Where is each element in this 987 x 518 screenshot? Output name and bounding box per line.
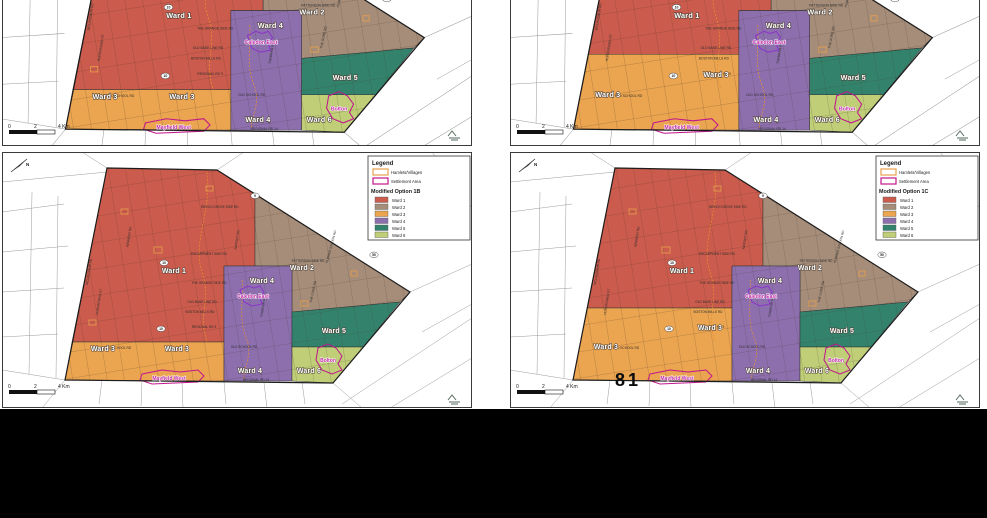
ward-4-swatch [375, 218, 388, 224]
svg-text:N: N [534, 162, 537, 167]
shield-numlabel-10: 10 [167, 5, 171, 9]
svg-text:Ward 4: Ward 4 [900, 219, 914, 224]
wlabel-ward-1: Ward 1 [162, 268, 186, 275]
svg-text:Ward 4: Ward 4 [392, 219, 406, 224]
ward-5-swatch [375, 225, 388, 231]
wlabel-ward-3: Ward 3 [169, 92, 194, 101]
wlabel-ward-4: Ward 4 [753, 115, 778, 124]
rlabel-escarpment-side-rd: ESCARPMENT SIDE RD [191, 252, 228, 256]
wlabel-ward-4: Ward 4 [766, 21, 791, 30]
rlabel-old-base-line-rd: OLD BASE LINE RD [695, 300, 725, 304]
shield-numlabel-50: 50 [880, 253, 884, 257]
slabel-caledon-east: Caledon East [753, 40, 786, 46]
wlabel-ward-3: Ward 3 [92, 92, 117, 101]
ward-1-swatch [375, 197, 388, 203]
legend-title: Legend [880, 161, 902, 167]
ward-1-swatch [883, 197, 896, 203]
ward-2-swatch [375, 204, 388, 210]
settlement-swatch [373, 178, 388, 184]
slabel-bolton: Bolton [331, 106, 347, 112]
hamlets-label: Hamlets/Villages [899, 170, 930, 175]
map-panel-bottom-left: BEECH GROVE SIDE RDESCARPMENT SIDE RDPAT… [2, 152, 472, 408]
wlabel-ward-1: Ward 1 [670, 268, 694, 275]
svg-text:4 Km: 4 Km [58, 384, 70, 390]
svg-text:Ward 3: Ward 3 [900, 212, 914, 217]
option-title: Modified Option 1C [879, 189, 929, 195]
ward-3-swatch [375, 211, 388, 217]
svg-text:4 Km: 4 Km [566, 384, 578, 390]
shield-numlabel-50: 50 [385, 0, 389, 1]
wlabel-ward-3: Ward 3 [698, 325, 722, 332]
slabel-caledon-east: Caledon East [245, 40, 278, 46]
rlabel-escarpment-side-rd: ESCARPMENT SIDE RD [699, 252, 736, 256]
wlabel-ward-4: Ward 4 [258, 21, 283, 30]
slabel-caledon-east: Caledon East [237, 294, 269, 300]
wlabel-ward-5: Ward 5 [841, 73, 866, 82]
rlabel-old-base-line-rd: OLD BASE LINE RD [187, 300, 217, 304]
black-band [0, 409, 987, 518]
rlabel-boston-mills-rd: BOSTON MILLS RD [694, 310, 724, 314]
shield-numlabel-10: 10 [163, 74, 167, 78]
wlabel-ward-4: Ward 4 [238, 368, 262, 375]
slabel-caledon-east: Caledon East [745, 294, 777, 300]
rlabel-regional-rd-9: REGIONAL RD 9 [192, 325, 217, 329]
wlabel-ward-5: Ward 5 [333, 73, 358, 82]
hamlets-swatch [881, 169, 896, 175]
wlabel-ward-1: Ward 1 [166, 11, 191, 20]
rlabel-regional-rd-9: REGIONAL RD 9 [197, 72, 223, 76]
wlabel-ward-3: Ward 3 [703, 70, 728, 79]
slabel-bolton: Bolton [320, 358, 336, 364]
legend: Legend Hamlets/Villages Settlement Area … [368, 156, 470, 240]
svg-text:2: 2 [34, 384, 37, 390]
rlabel-the-grange-side-rd: THE GRANGE SIDE RD [700, 281, 736, 285]
rlabel-the-grange-side-rd: THE GRANGE SIDE RD [705, 26, 742, 30]
rlabel-the-grange-side-rd: THE GRANGE SIDE RD [197, 26, 234, 30]
rlabel-patterson-side-rd: PATTERSON SIDE RD [800, 259, 834, 263]
slabel-mayfield-west: Mayfield West [664, 125, 699, 131]
slabel-mayfield-west: Mayfield West [660, 376, 694, 382]
wlabel-ward-2: Ward 2 [798, 265, 822, 272]
shield-numlabel-10: 10 [675, 5, 679, 9]
shield-numlabel-9: 9 [762, 194, 764, 198]
map-panel-top-left: BEECH GROVE SIDE RDESCARPMENT SIDE RDPAT… [0, 0, 489, 158]
svg-text:Ward 5: Ward 5 [900, 226, 914, 231]
option-title: Modified Option 1B [371, 189, 421, 195]
shield-numlabel-10: 10 [162, 261, 166, 265]
svg-text:Ward 1: Ward 1 [900, 198, 914, 203]
wlabel-ward-6: Ward 6 [805, 368, 829, 375]
rlabel-boston-mills-rd: BOSTON MILLS RD [191, 56, 222, 60]
document-page: BEECH GROVE SIDE RDESCARPMENT SIDE RDPAT… [0, 0, 987, 518]
wlabel-ward-3: Ward 3 [165, 346, 189, 353]
rlabel-regional-rd-14: REGIONAL RD 14 [243, 378, 270, 382]
legend: Legend Hamlets/Villages Settlement Area … [876, 156, 978, 240]
ward-4-swatch [883, 218, 896, 224]
svg-text:Ward 2: Ward 2 [900, 205, 914, 210]
wlabel-ward-3: Ward 3 [594, 344, 618, 351]
wlabel-ward-2: Ward 2 [299, 8, 324, 17]
ward-2-swatch [883, 204, 896, 210]
svg-text:2: 2 [542, 384, 545, 390]
ward-3-swatch [883, 211, 896, 217]
svg-text:Ward 6: Ward 6 [392, 233, 406, 238]
svg-text:Ward 6: Ward 6 [900, 233, 914, 238]
ward-6-swatch [375, 232, 388, 238]
svg-text:N: N [26, 162, 29, 167]
slabel-bolton: Bolton [828, 358, 844, 364]
hamlets-label: Hamlets/Villages [391, 170, 422, 175]
wlabel-ward-5: Ward 5 [830, 328, 854, 335]
rlabel-regional-rd-14: REGIONAL RD 14 [251, 127, 278, 131]
rlabel-boston-mills-rd: BOSTON MILLS RD [699, 56, 730, 60]
wlabel-ward-3: Ward 3 [91, 346, 115, 353]
shield-numlabel-50: 50 [893, 0, 897, 1]
shield-numlabel-9: 9 [254, 194, 256, 198]
shield-numlabel-10: 10 [671, 74, 675, 78]
wlabel-ward-4: Ward 4 [245, 115, 270, 124]
shield-numlabel-10: 10 [159, 327, 163, 331]
svg-text:Ward 3: Ward 3 [392, 212, 406, 217]
svg-text:2: 2 [542, 124, 545, 130]
hamlets-swatch [373, 169, 388, 175]
ward-6-swatch [883, 232, 896, 238]
wlabel-ward-2: Ward 2 [807, 8, 832, 17]
wlabel-ward-4: Ward 4 [758, 278, 782, 285]
settlement-swatch [881, 178, 896, 184]
rlabel-regional-rd-14: REGIONAL RD 14 [751, 378, 778, 382]
wlabel-ward-3: Ward 3 [595, 90, 620, 99]
settlement-label: Settlement Area [391, 179, 421, 184]
wlabel-ward-1: Ward 1 [674, 11, 699, 20]
svg-text:Ward 2: Ward 2 [392, 205, 406, 210]
rlabel-boston-mills-rd: BOSTON MILLS RD [186, 310, 216, 314]
settlement-label: Settlement Area [899, 179, 929, 184]
slabel-bolton: Bolton [839, 106, 855, 112]
slabel-mayfield-west: Mayfield West [156, 125, 191, 131]
wlabel-ward-6: Ward 6 [297, 368, 321, 375]
wlabel-ward-4: Ward 4 [746, 368, 770, 375]
shield-numlabel-10: 10 [667, 327, 671, 331]
rlabel-old-school-rd: OLD SCHOOL RD [231, 345, 258, 349]
svg-text:0: 0 [8, 384, 11, 390]
ward-maps-figure: BEECH GROVE SIDE RDESCARPMENT SIDE RDPAT… [0, 0, 987, 410]
svg-text:4 Km: 4 Km [566, 124, 578, 130]
svg-text:4 Km: 4 Km [58, 124, 70, 130]
slabel-mayfield-west: Mayfield West [152, 376, 186, 382]
wlabel-ward-4: Ward 4 [250, 278, 274, 285]
wlabel-ward-6: Ward 6 [307, 115, 332, 124]
rlabel-patterson-side-rd: PATTERSON SIDE RD [292, 259, 326, 263]
map-panel-bottom-right: BEECH GROVE SIDE RDESCARPMENT SIDE RDPAT… [510, 152, 980, 408]
svg-text:Ward 5: Ward 5 [392, 226, 406, 231]
svg-text:0: 0 [516, 124, 519, 130]
svg-text:Ward 1: Ward 1 [392, 198, 406, 203]
wlabel-ward-2: Ward 2 [290, 265, 314, 272]
rlabel-the-grange-side-rd: THE GRANGE SIDE RD [192, 281, 228, 285]
rlabel-old-base-line-rd: OLD BASE LINE RD [701, 46, 732, 50]
map-panel-top-right: BEECH GROVE SIDE RDESCARPMENT SIDE RDPAT… [508, 0, 987, 158]
rlabel-old-school-rd: OLD SCHOOL RD [739, 345, 766, 349]
rlabel-old-base-line-rd: OLD BASE LINE RD [193, 46, 224, 50]
svg-text:0: 0 [8, 124, 11, 130]
svg-text:2: 2 [34, 124, 37, 130]
svg-text:0: 0 [516, 384, 519, 390]
rlabel-beech-grove-side-rd: BEECH GROVE SIDE RD [201, 205, 239, 209]
rlabel-old-school-rd: OLD SCHOOL RD [746, 93, 774, 97]
wlabel-ward-5: Ward 5 [322, 328, 346, 335]
page-number: 81 [615, 370, 641, 391]
ward-5-swatch [883, 225, 896, 231]
shield-numlabel-10: 10 [670, 261, 674, 265]
shield-numlabel-50: 50 [372, 253, 376, 257]
wlabel-ward-6: Ward 6 [815, 115, 840, 124]
rlabel-beech-grove-side-rd: BEECH GROVE SIDE RD [709, 205, 747, 209]
rlabel-regional-rd-14: REGIONAL RD 14 [759, 127, 786, 131]
legend-title: Legend [372, 161, 394, 167]
rlabel-old-school-rd: OLD SCHOOL RD [238, 93, 266, 97]
